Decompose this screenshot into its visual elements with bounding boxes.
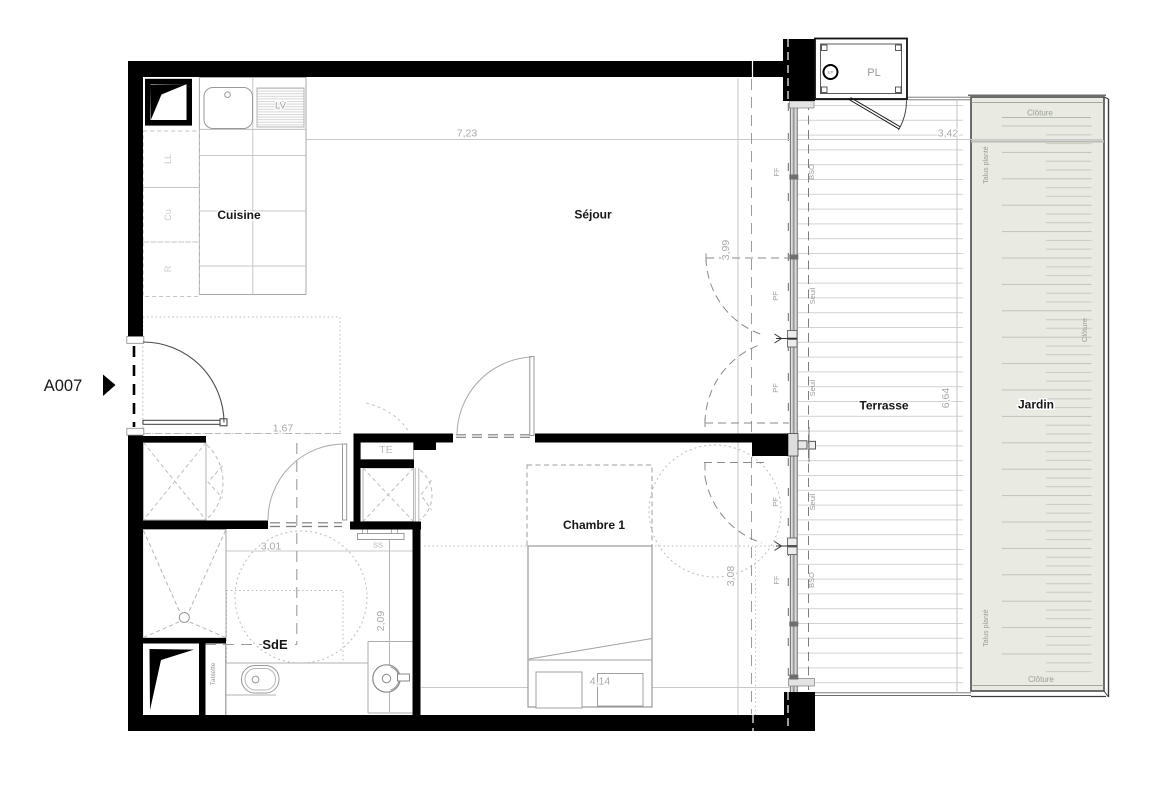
svg-text:4,14: 4,14 bbox=[590, 676, 611, 688]
svg-text:1,67: 1,67 bbox=[273, 423, 294, 435]
svg-text:3,01: 3,01 bbox=[261, 541, 282, 553]
svg-text:SdE: SdE bbox=[262, 637, 288, 652]
svg-text:LV: LV bbox=[275, 101, 287, 112]
svg-text:A007: A007 bbox=[44, 377, 83, 395]
svg-text:FF: FF bbox=[772, 167, 781, 177]
svg-text:Cuisine: Cuisine bbox=[217, 208, 261, 222]
svg-text:TE: TE bbox=[379, 444, 392, 456]
svg-text:Clôture: Clôture bbox=[1080, 318, 1089, 342]
svg-text:FF: FF bbox=[772, 575, 781, 585]
svg-text:BSO: BSO bbox=[807, 164, 816, 180]
svg-text:EP: EP bbox=[827, 70, 833, 75]
svg-text:Seuil: Seuil bbox=[808, 379, 817, 396]
svg-text:PF: PF bbox=[771, 383, 780, 393]
svg-text:R: R bbox=[163, 265, 173, 272]
svg-text:Cu: Cu bbox=[163, 209, 173, 221]
svg-text:3,99: 3,99 bbox=[720, 240, 732, 261]
svg-text:6,64: 6,64 bbox=[940, 388, 952, 409]
svg-text:3,42: 3,42 bbox=[938, 128, 959, 140]
svg-text:BSO: BSO bbox=[807, 572, 816, 588]
svg-text:Seuil: Seuil bbox=[808, 493, 817, 510]
svg-text:LL: LL bbox=[163, 154, 173, 164]
svg-text:PF: PF bbox=[771, 497, 780, 507]
svg-text:Chambre 1: Chambre 1 bbox=[563, 518, 625, 532]
svg-text:Talus planté: Talus planté bbox=[983, 609, 990, 646]
svg-text:Talus planté: Talus planté bbox=[983, 146, 990, 183]
svg-text:Séjour: Séjour bbox=[574, 208, 612, 222]
svg-text:PL: PL bbox=[867, 67, 880, 79]
svg-text:2,09: 2,09 bbox=[375, 611, 387, 632]
svg-text:PF: PF bbox=[771, 291, 780, 301]
svg-text:Clôture: Clôture bbox=[1027, 109, 1053, 118]
svg-text:3,08: 3,08 bbox=[725, 566, 737, 587]
svg-text:Jardin: Jardin bbox=[1018, 398, 1054, 412]
svg-text:Seuil: Seuil bbox=[808, 287, 817, 304]
svg-text:Clôture: Clôture bbox=[1028, 675, 1054, 684]
svg-text:Terrasse: Terrasse bbox=[859, 399, 908, 413]
svg-text:Tablette: Tablette bbox=[210, 662, 217, 685]
svg-text:7,23: 7,23 bbox=[457, 128, 478, 140]
svg-text:SS: SS bbox=[373, 541, 383, 550]
